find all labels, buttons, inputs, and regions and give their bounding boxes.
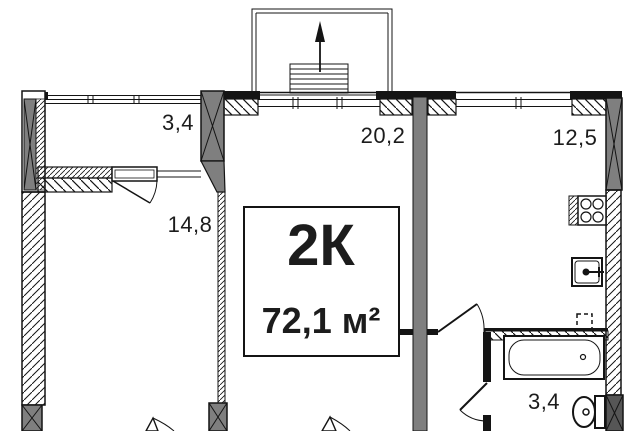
room-label-balcony: 3,4 <box>162 110 194 135</box>
column-bottom-middle <box>209 403 227 431</box>
stove-icon <box>569 196 606 225</box>
unit-area-label: 72,1 м² <box>262 300 381 341</box>
room-label-kitchen: 12,5 <box>553 125 598 150</box>
floor-plan-drawing: 3,4 20,2 12,5 14,8 3,4 2К 72,1 м² <box>0 0 640 431</box>
central-wall <box>413 97 427 431</box>
room-label-living-room: 20,2 <box>361 123 406 148</box>
unit-info-box: 2К 72,1 м² <box>244 207 399 356</box>
sink-icon <box>572 258 604 286</box>
floor-plan: 3,4 20,2 12,5 14,8 3,4 2К 72,1 м² <box>0 0 640 431</box>
toilet-icon <box>573 396 605 428</box>
escape-ladder-icon <box>290 64 348 93</box>
column-bottom-left <box>22 405 42 431</box>
unit-type-label: 2К <box>287 213 355 278</box>
bathtub-icon <box>504 336 604 379</box>
room-label-bedroom: 14,8 <box>168 212 213 237</box>
left-wall <box>22 91 45 431</box>
column-bottom-right <box>606 395 623 431</box>
room-label-bathroom: 3,4 <box>528 389 560 414</box>
right-wall <box>606 98 623 431</box>
